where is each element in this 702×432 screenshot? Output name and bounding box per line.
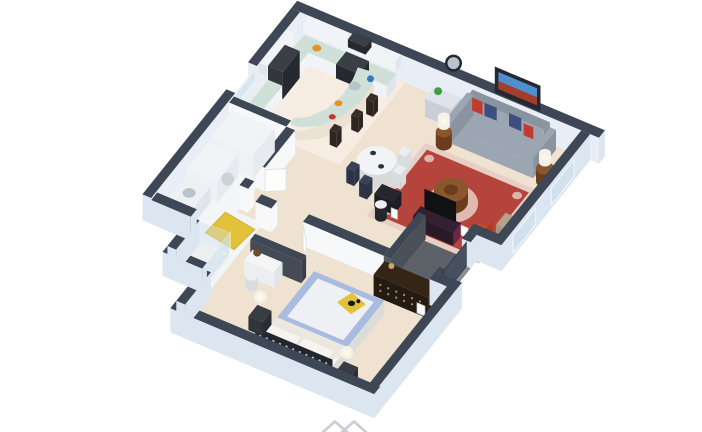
blue-kettle bbox=[367, 75, 374, 82]
bathroom-door-open bbox=[265, 169, 286, 192]
round-mirror-glass bbox=[448, 57, 460, 69]
lamp-glow bbox=[542, 154, 548, 160]
island-fruit-bowl bbox=[334, 100, 342, 106]
island-fruit-bowl-2 bbox=[329, 114, 336, 119]
leaning-art-card bbox=[391, 208, 397, 220]
vanity-bowl bbox=[253, 249, 261, 257]
lamp-glow bbox=[441, 118, 447, 124]
rug-corner-motif bbox=[424, 155, 434, 163]
watermark-chevrons bbox=[322, 422, 367, 432]
counter-fruit-bowl bbox=[312, 45, 321, 52]
dresser-lamp bbox=[388, 263, 394, 269]
cat-head bbox=[356, 299, 360, 303]
bathroom-sink bbox=[183, 188, 196, 198]
island-sink bbox=[349, 82, 361, 91]
apartment-floor-plan-render bbox=[0, 0, 702, 432]
vanity-stool bbox=[246, 272, 258, 291]
desk-chair bbox=[375, 200, 387, 222]
floor-plan-canvas bbox=[0, 0, 702, 432]
washer-door bbox=[221, 173, 234, 186]
wall-bedroom-north bbox=[256, 194, 278, 232]
cat-body bbox=[348, 301, 355, 306]
place-setting bbox=[378, 164, 384, 169]
place-setting bbox=[370, 151, 376, 156]
sphere-lamp-east-glow bbox=[343, 349, 350, 356]
coffee-table-tray bbox=[444, 185, 458, 196]
sphere-lamp-west-glow bbox=[257, 294, 264, 301]
wall-bathroom-east-2 bbox=[240, 178, 255, 213]
rug-corner-motif bbox=[512, 192, 522, 200]
bar-cart-plant bbox=[434, 87, 442, 95]
